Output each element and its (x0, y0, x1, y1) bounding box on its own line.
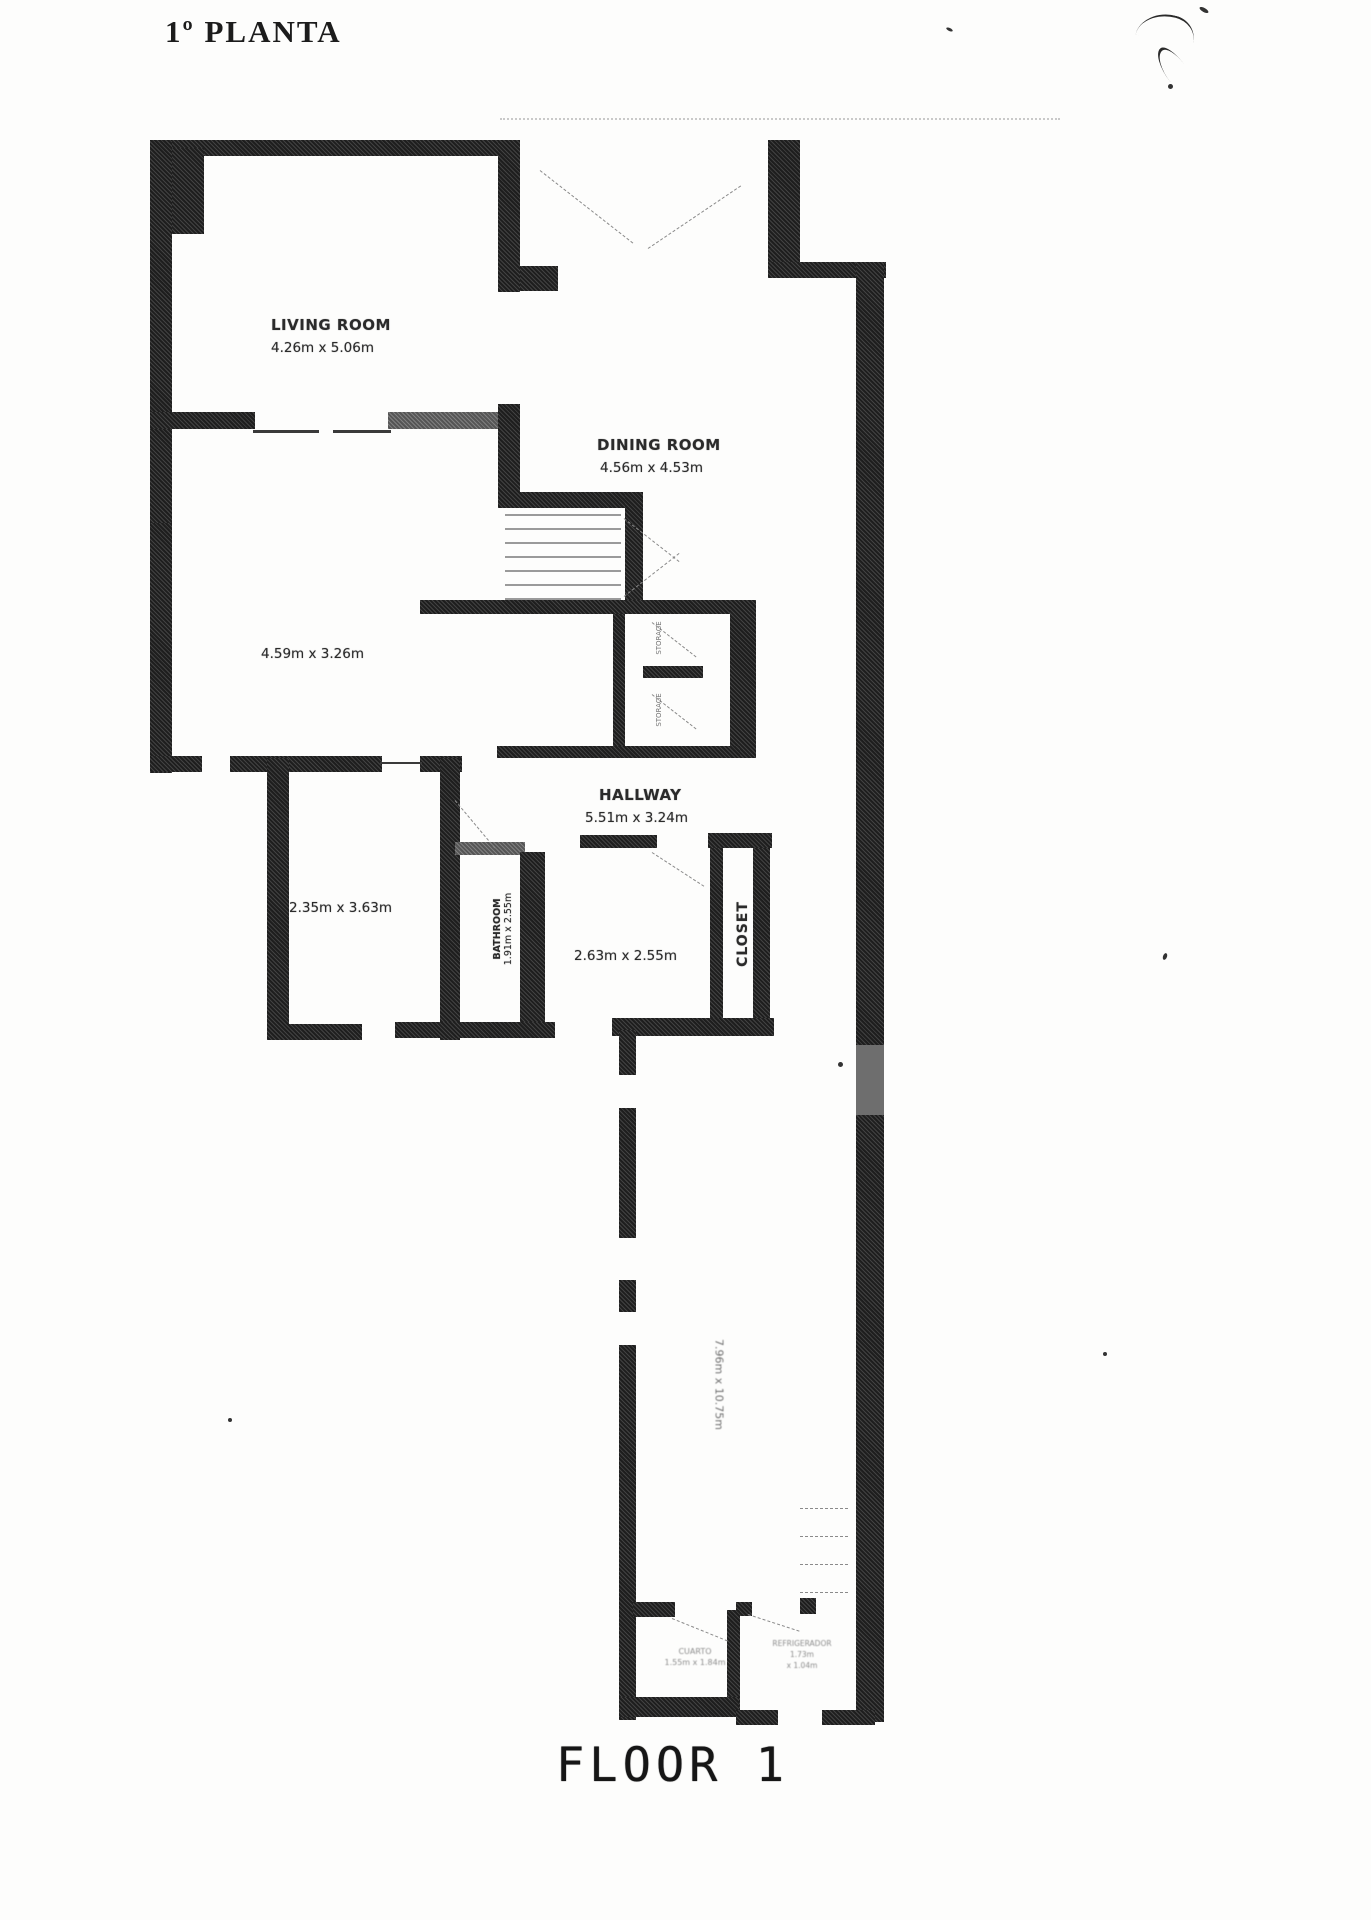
door-threshold (253, 430, 319, 433)
shelf-line (800, 1536, 848, 1537)
small-bedroom-dims: 2.35m x 3.63m (289, 900, 392, 916)
wall (613, 614, 625, 750)
fridge-nook-label: REFRIGERADOR 1.73m x 1.04m (752, 1638, 852, 1671)
pantry-line1: CUARTO (645, 1646, 745, 1657)
bedroom-door-arc (652, 852, 705, 887)
living-room-dims: 4.26m x 5.06m (271, 340, 374, 356)
scan-speck (946, 27, 954, 33)
scan-speck (1168, 84, 1173, 89)
wall (520, 266, 558, 291)
wall (267, 1024, 362, 1040)
floor-plan: 1º PLANTA LIVING ROOM 4.26m x 5.06m DINI… (0, 0, 1371, 1920)
wall (856, 1045, 884, 1115)
wall (440, 758, 460, 1040)
shelf-line (800, 1592, 848, 1593)
scan-speck (1162, 953, 1168, 961)
wall (150, 140, 172, 524)
wall (643, 666, 703, 678)
wall (612, 1018, 774, 1036)
wall (420, 600, 732, 614)
wall (753, 848, 770, 1022)
door-threshold (380, 762, 422, 764)
bottom-left-door-arc (672, 1618, 728, 1641)
shelf-line (800, 1508, 848, 1509)
corridor-dims: 7.96m x 10.75m (713, 1306, 726, 1464)
scan-speck (228, 1418, 232, 1422)
bottom-right-door-arc (748, 1614, 800, 1632)
floor-number-label: FLOOR 1 (556, 1738, 789, 1793)
scan-speck (1199, 6, 1210, 14)
bathroom-dims: 1.91m x 2.55m (503, 864, 514, 994)
door-threshold (333, 430, 391, 433)
wall (736, 1710, 778, 1725)
wall (619, 1345, 636, 1720)
hallway-label: HALLWAY (599, 786, 682, 804)
wall (625, 492, 643, 614)
wall (619, 1030, 636, 1075)
scan-artifact-line (500, 118, 1060, 120)
bathroom-label: BATHROOM 1.91m x 2.55m (492, 864, 514, 994)
pantry-label: CUARTO 1.55m x 1.84m (645, 1646, 745, 1668)
wall (172, 148, 204, 234)
wall (768, 140, 800, 266)
hallway-dims: 5.51m x 3.24m (585, 810, 688, 826)
wall (580, 835, 657, 848)
bathroom-name: BATHROOM (492, 864, 503, 994)
scan-squiggle (1135, 7, 1198, 48)
pantry-line2: 1.55m x 1.84m (645, 1657, 745, 1668)
wall (708, 833, 772, 848)
wall (619, 1108, 636, 1238)
wall (822, 1710, 875, 1725)
wall (619, 1697, 739, 1717)
wall (150, 756, 202, 772)
family-room-dims: 4.59m x 3.26m (261, 646, 364, 662)
wall (150, 523, 172, 773)
wall (395, 1022, 555, 1038)
closet-label: CLOSET (735, 889, 751, 979)
wall (150, 412, 255, 429)
wall (856, 262, 884, 1722)
wall (497, 746, 740, 758)
wall (498, 492, 643, 508)
wall (267, 758, 289, 1040)
wall (520, 852, 545, 1022)
bedroom-dims: 2.63m x 2.55m (574, 948, 677, 964)
dining-room-dims: 4.56m x 4.53m (600, 460, 703, 476)
scan-speck (838, 1062, 843, 1067)
wall (710, 848, 723, 1023)
fridge-line1: REFRIGERADOR (752, 1638, 852, 1649)
scan-squiggle (1150, 43, 1188, 83)
wall (619, 1280, 636, 1312)
wall (230, 756, 382, 772)
wall (730, 600, 756, 758)
page-title: 1º PLANTA (165, 14, 342, 50)
shelf-line (800, 1564, 848, 1565)
dining-room-label: DINING ROOM (597, 436, 721, 454)
entry-door-swing (648, 185, 741, 248)
storage-lower-label: STORAGE (655, 681, 663, 739)
wall (498, 140, 520, 292)
fridge-line3: x 1.04m (752, 1660, 852, 1671)
scan-speck (1103, 1352, 1107, 1356)
entry-door-swing (540, 170, 634, 243)
wall (633, 1602, 675, 1617)
fridge-line2: 1.73m (752, 1649, 852, 1660)
stairs (505, 514, 621, 600)
wall (388, 412, 500, 429)
storage-upper-label: STORAGE (655, 609, 663, 667)
wall (800, 1598, 816, 1614)
living-room-label: LIVING ROOM (271, 316, 391, 334)
